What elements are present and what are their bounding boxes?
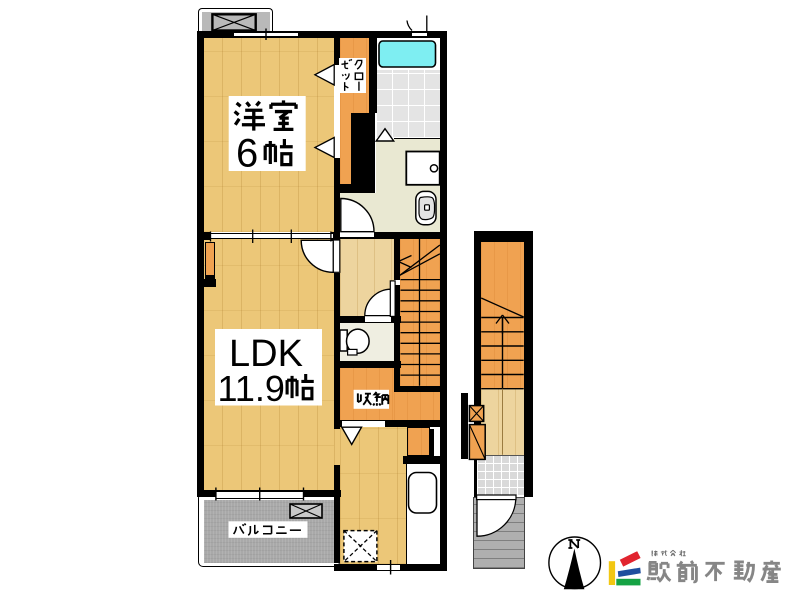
svg-text:6: 6 <box>236 132 258 176</box>
svg-text:11.9: 11.9 <box>218 368 285 409</box>
